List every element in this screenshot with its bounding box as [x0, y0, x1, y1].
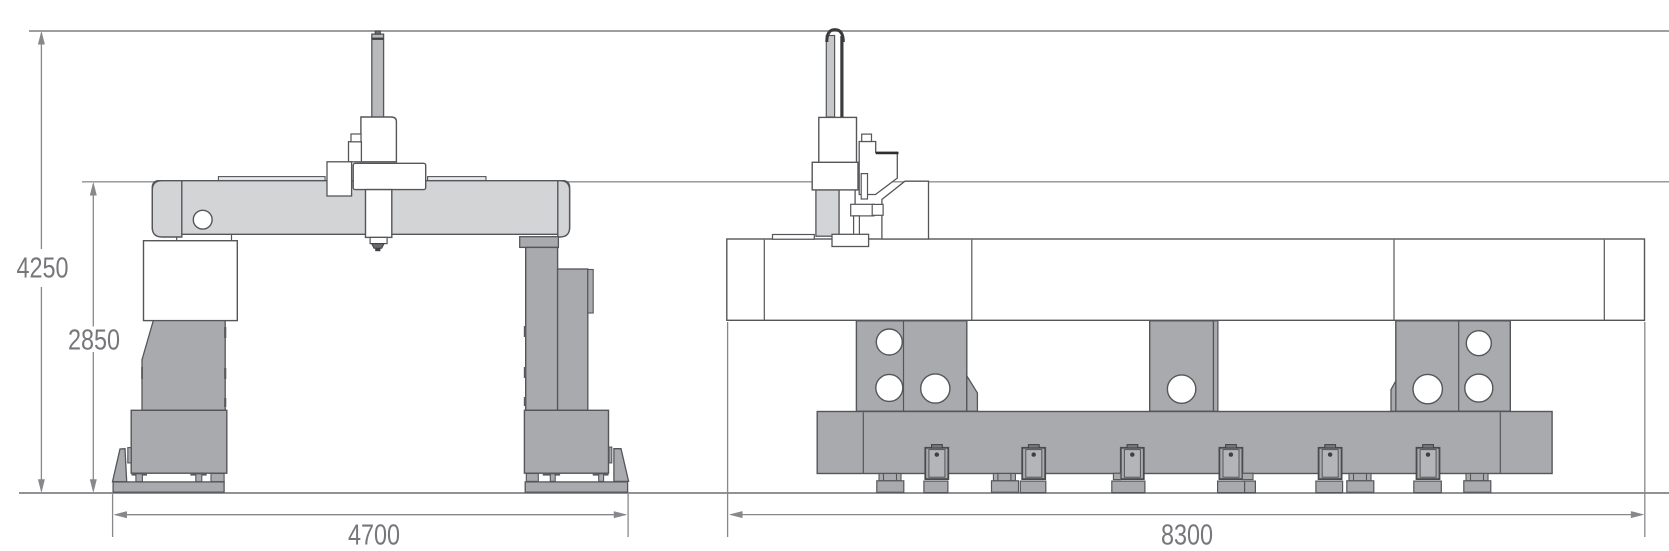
svg-text:4250: 4250 — [17, 253, 69, 285]
svg-text:8300: 8300 — [1161, 519, 1213, 551]
svg-text:4700: 4700 — [348, 519, 400, 551]
svg-text:2850: 2850 — [68, 325, 120, 357]
